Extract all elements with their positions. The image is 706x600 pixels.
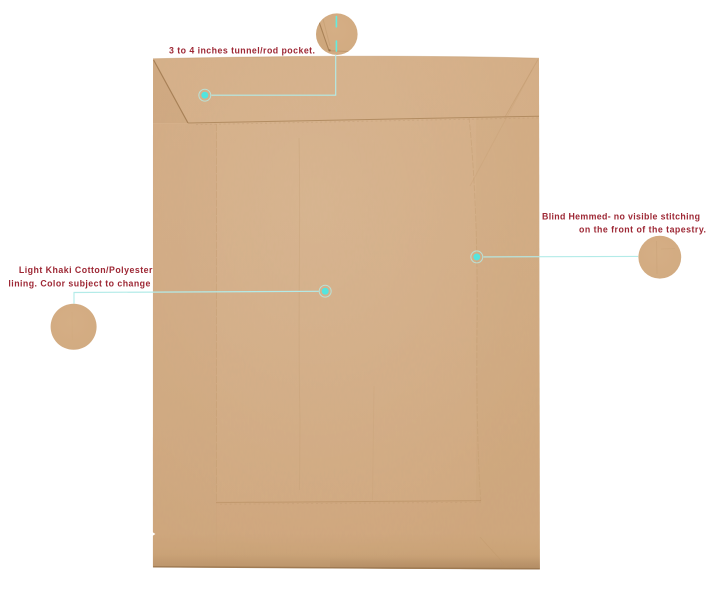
- svg-text:lining. Color subject to chang: lining. Color subject to change: [8, 279, 150, 289]
- svg-text:Light Khaki Cotton/Polyester: Light Khaki Cotton/Polyester: [19, 265, 153, 275]
- svg-text:on the front of the tapestry.: on the front of the tapestry.: [579, 224, 706, 234]
- svg-text:3 to 4 inches tunnel/rod pocke: 3 to 4 inches tunnel/rod pocket.: [169, 46, 315, 56]
- svg-text:Blind Hemmed- no visible stitc: Blind Hemmed- no visible stitching: [542, 211, 700, 221]
